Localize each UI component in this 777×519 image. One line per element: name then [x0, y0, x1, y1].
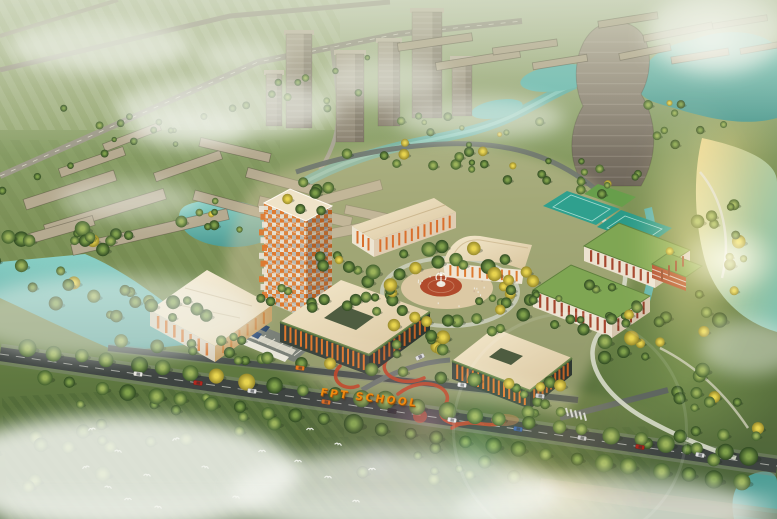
car	[457, 382, 466, 387]
scene-illustration	[0, 0, 777, 519]
residential-tower	[334, 50, 366, 142]
car	[295, 365, 304, 370]
residential-tower	[264, 70, 284, 126]
dormitory-block-3	[652, 253, 702, 291]
car	[535, 393, 544, 398]
egret-flock	[82, 428, 375, 509]
residential-tower	[284, 30, 314, 128]
aerial-render-scene: FPT SCHOOL	[0, 0, 777, 519]
